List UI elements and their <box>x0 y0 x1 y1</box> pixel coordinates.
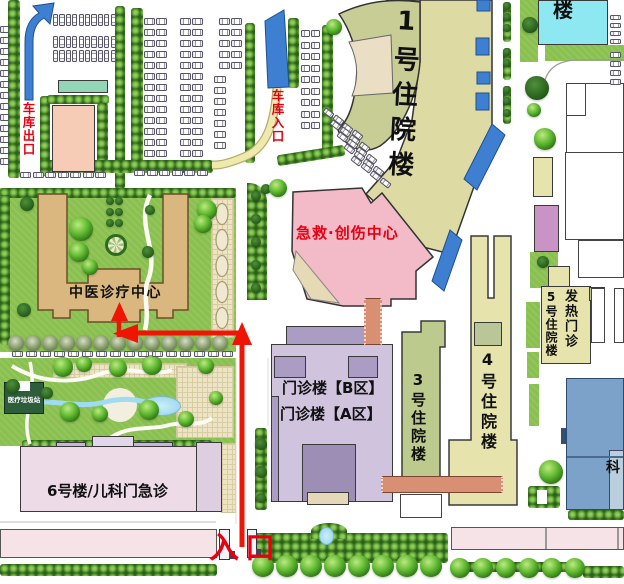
white-building <box>591 288 605 343</box>
car-icon <box>301 99 310 106</box>
car-icon <box>53 50 58 62</box>
car-icon <box>45 172 56 178</box>
car-icon <box>610 79 621 85</box>
car-icon <box>85 50 90 62</box>
car-icon <box>59 14 64 26</box>
car-icon <box>180 106 191 113</box>
boundary-building-west <box>0 529 217 558</box>
car-icon <box>83 172 94 178</box>
car-icon <box>144 40 155 47</box>
car-icon <box>58 172 69 178</box>
car-icon <box>0 48 9 55</box>
car-icon <box>610 39 621 44</box>
car-icon <box>66 50 71 62</box>
car-icon <box>214 98 226 105</box>
label-building-6: 6号楼/儿科门急诊 <box>47 484 168 499</box>
tree-icon <box>527 103 541 117</box>
car-icon <box>0 114 9 121</box>
car-icon <box>311 30 320 37</box>
car-icon <box>0 37 9 44</box>
car-icon <box>111 50 116 62</box>
car-icon <box>180 51 191 58</box>
car-icon <box>214 120 226 127</box>
car-icon <box>184 170 195 176</box>
car-icon <box>610 23 621 28</box>
car-icon <box>231 18 242 25</box>
car-icon <box>311 53 320 60</box>
tree-icon <box>255 466 267 478</box>
tree-icon <box>109 359 127 377</box>
car-icon <box>192 84 203 91</box>
car-icon <box>91 36 96 48</box>
car-icon <box>311 88 320 95</box>
car-icon <box>610 31 621 36</box>
tree-icon <box>53 357 73 377</box>
tree-icon <box>503 48 511 56</box>
hedge <box>568 510 624 520</box>
paved-path <box>211 198 234 338</box>
car-icon <box>192 117 203 124</box>
label-inpatient-3: 3号住院楼 <box>410 371 425 464</box>
car-icon <box>156 139 167 146</box>
building-inpatient-5-wing <box>548 266 570 287</box>
car-icon <box>180 95 191 102</box>
car-icon <box>156 117 167 124</box>
car-icon <box>144 29 155 36</box>
beige-annex-building <box>533 157 553 197</box>
hedge <box>277 145 346 167</box>
hedge-gap <box>537 490 547 504</box>
car-icon <box>219 40 230 47</box>
teal-service-building <box>58 80 108 93</box>
car-icon <box>156 62 167 69</box>
car-icon <box>311 65 320 72</box>
car-icon <box>144 128 155 135</box>
car-icon <box>156 84 167 91</box>
garden-plaza-circle <box>103 388 137 422</box>
car-icon <box>192 95 203 102</box>
car-icon <box>0 125 9 132</box>
grass-area <box>526 302 540 348</box>
label-garage-exit: 车库出口 <box>21 102 34 156</box>
car-icon <box>192 40 203 47</box>
car-icon <box>180 139 191 146</box>
car-icon <box>208 351 219 357</box>
hedge <box>288 18 299 88</box>
tree-icon <box>142 355 162 375</box>
car-icon <box>610 70 621 76</box>
label-tcm-center: 中医诊疗中心 <box>69 286 162 300</box>
car-icon <box>72 14 77 26</box>
bush-icon <box>127 335 143 351</box>
car-icon <box>98 14 103 26</box>
tree-icon <box>503 97 511 105</box>
car-icon <box>219 18 230 25</box>
car-icon <box>85 14 90 26</box>
car-icon <box>231 40 242 47</box>
car-icon <box>70 172 81 178</box>
tree-icon <box>539 460 563 484</box>
car-icon <box>91 14 96 26</box>
car-icon <box>192 62 203 69</box>
tree-icon <box>115 208 123 216</box>
paved-path <box>176 366 234 438</box>
car-icon <box>301 53 310 60</box>
car-icon <box>12 351 23 357</box>
car-icon <box>311 76 320 83</box>
car-icon <box>180 18 191 25</box>
tree-icon <box>251 214 261 224</box>
tree-icon <box>115 197 123 205</box>
car-icon <box>72 50 77 62</box>
tree-icon <box>106 208 114 216</box>
car-icon <box>301 42 310 49</box>
car-icon <box>610 15 621 20</box>
car-icon <box>66 36 71 48</box>
car-icon <box>124 351 135 357</box>
car-icon <box>104 50 109 62</box>
car-icon <box>192 18 203 25</box>
car-icon <box>231 51 242 58</box>
car-icon <box>79 36 84 48</box>
label-dept-partial: 科 <box>606 461 620 475</box>
building-6-pediatrics <box>20 446 212 512</box>
bush-icon <box>178 335 194 351</box>
tree-icon <box>525 76 549 100</box>
tree-icon <box>503 2 511 10</box>
car-icon <box>40 351 51 357</box>
car-icon <box>214 76 226 83</box>
car-icon <box>311 42 320 49</box>
outpatient-entrance-canopy <box>307 492 349 505</box>
label-outpatient-a: 门诊楼【A区】 <box>280 407 382 422</box>
tree-icon <box>503 109 511 117</box>
garage-ramp-icon <box>265 10 289 88</box>
label-inpatient-4: 4号住院楼 <box>479 350 495 453</box>
white-building <box>565 152 624 240</box>
bush-icon <box>110 335 126 351</box>
car-icon <box>180 117 191 124</box>
tree-icon <box>106 197 114 205</box>
label-garage-entrance: 车库入口 <box>270 89 283 143</box>
corridor-annex <box>400 494 442 518</box>
tree-icon <box>326 19 342 35</box>
car-icon <box>156 40 167 47</box>
car-icon <box>104 36 109 48</box>
car-icon <box>311 99 320 106</box>
tree-icon <box>60 402 80 422</box>
car-icon <box>0 81 9 88</box>
hedge <box>131 8 143 163</box>
car-icon <box>59 50 64 62</box>
bush-icon <box>195 335 211 351</box>
car-icon <box>301 65 310 72</box>
car-icon <box>0 147 9 154</box>
car-icon <box>180 150 191 157</box>
car-icon <box>214 142 226 149</box>
car-icon <box>152 351 163 357</box>
tree-icon <box>69 217 93 241</box>
tree-icon <box>255 438 267 450</box>
bush-icon <box>76 335 92 351</box>
tree-icon <box>503 59 511 67</box>
tree-icon <box>300 555 322 577</box>
car-icon <box>301 88 310 95</box>
hedge <box>0 195 10 345</box>
car-icon <box>180 29 191 36</box>
car-icon <box>72 36 77 48</box>
car-icon <box>180 73 191 80</box>
car-icon <box>311 111 320 118</box>
hedge <box>583 566 624 578</box>
car-icon <box>219 62 230 69</box>
tree-icon <box>76 356 92 372</box>
car-icon <box>0 26 9 33</box>
tree-icon <box>139 400 159 420</box>
tree-icon <box>251 237 261 247</box>
flowerbed-icon <box>105 234 127 256</box>
car-icon <box>147 170 158 176</box>
tree-icon <box>537 256 549 268</box>
car-icon <box>219 51 230 58</box>
car-icon <box>192 139 203 146</box>
dept-building-floor-line <box>567 456 623 458</box>
garage-exit-arrow-icon <box>25 3 54 100</box>
car-icon <box>156 18 167 25</box>
bush-icon <box>25 335 41 351</box>
car-icon <box>214 109 226 116</box>
car-icon <box>610 61 621 67</box>
label-inpatient-1: 1号住院楼 <box>385 6 420 186</box>
car-icon <box>66 14 71 26</box>
tree-icon <box>256 493 266 503</box>
car-icon <box>231 29 242 36</box>
tree-icon <box>534 128 556 150</box>
car-icon <box>197 170 208 176</box>
car-icon <box>192 106 203 113</box>
bush-icon <box>161 335 177 351</box>
label-inpatient-5: 5号住院楼 <box>545 290 557 357</box>
car-icon <box>166 351 177 357</box>
tree-icon <box>142 246 154 258</box>
car-icon <box>222 351 233 357</box>
tree-icon <box>420 555 442 577</box>
tree-icon <box>106 219 114 227</box>
tree-icon <box>542 558 562 578</box>
building-inpatient-4-annex <box>474 322 502 346</box>
bush-icon <box>93 335 109 351</box>
outpatient-tab-right <box>348 356 378 378</box>
purple-annex-building <box>534 205 559 252</box>
tree-icon <box>92 406 108 422</box>
car-icon <box>610 52 621 58</box>
tree-icon <box>565 558 585 578</box>
car-icon <box>98 36 103 48</box>
tree-icon <box>6 379 20 393</box>
car-icon <box>54 351 65 357</box>
car-icon <box>144 106 155 113</box>
pond-icon <box>319 527 334 545</box>
car-icon <box>301 30 310 37</box>
car-icon <box>85 36 90 48</box>
outpatient-tab-left <box>274 356 306 378</box>
canopy-icon <box>432 0 505 291</box>
car-icon <box>180 128 191 135</box>
grass-area <box>527 352 539 378</box>
building-inpatient-2 <box>538 0 608 45</box>
car-icon <box>0 92 9 99</box>
car-icon <box>144 150 155 157</box>
paved-path <box>221 443 236 513</box>
hedge <box>245 23 255 163</box>
car-icon <box>192 128 203 135</box>
label-inpatient-2-partial: 楼 <box>553 0 573 20</box>
car-icon <box>180 84 191 91</box>
car-icon <box>59 36 64 48</box>
car-icon <box>95 172 106 178</box>
bush-icon <box>212 335 228 351</box>
car-icon <box>156 51 167 58</box>
tree-icon <box>198 358 214 374</box>
tree-icon <box>496 558 516 578</box>
car-icon <box>144 117 155 124</box>
tree-icon <box>503 13 511 21</box>
tree-icon <box>17 303 31 317</box>
car-icon <box>192 51 203 58</box>
car-icon <box>194 351 205 357</box>
car-icon <box>144 51 155 58</box>
tree-icon <box>348 555 370 577</box>
dept-building-panel <box>609 450 624 510</box>
label-fever-clinic: 发热门诊 <box>563 289 576 349</box>
car-icon <box>156 29 167 36</box>
car-icon <box>192 150 203 157</box>
car-icon <box>156 128 167 135</box>
tree-icon <box>115 219 123 227</box>
strip-divider <box>617 528 619 549</box>
car-icon <box>301 111 310 118</box>
tree-icon <box>20 197 34 211</box>
car-icon <box>144 18 155 25</box>
label-outpatient-b: 门诊楼【B区】 <box>282 381 383 396</box>
label-emergency-trauma-center: 急救·创伤中心 <box>296 226 399 241</box>
bush-icon <box>8 335 24 351</box>
tree-icon <box>251 260 261 270</box>
car-icon <box>192 73 203 80</box>
building-1-entry-plaza <box>349 35 393 96</box>
car-icon <box>82 351 93 357</box>
car-icon <box>110 351 121 357</box>
car-icon <box>214 87 226 94</box>
tree-icon <box>519 558 539 578</box>
grass-area <box>529 384 539 426</box>
car-icon <box>53 36 58 48</box>
tree-icon <box>324 555 346 577</box>
car-icon <box>144 139 155 146</box>
car-icon <box>172 170 183 176</box>
tree-icon <box>145 205 155 215</box>
boundary-building-east <box>451 527 624 550</box>
label-main-entrance: 入口 <box>209 534 281 564</box>
car-icon <box>79 50 84 62</box>
hedge <box>0 564 217 576</box>
car-icon <box>79 14 84 26</box>
tree-icon <box>450 558 470 578</box>
car-icon <box>192 29 203 36</box>
strip-divider <box>545 528 547 549</box>
car-icon <box>0 158 9 165</box>
tree-icon <box>473 558 493 578</box>
car-icon <box>311 122 320 129</box>
tree-icon <box>503 86 511 94</box>
car-icon <box>0 70 9 77</box>
bush-icon <box>144 335 160 351</box>
car-icon <box>180 62 191 69</box>
car-icon <box>231 62 242 69</box>
tree-icon <box>82 259 98 275</box>
car-icon <box>96 351 107 357</box>
tree-icon <box>194 215 212 233</box>
car-icon <box>98 50 103 62</box>
car-icon <box>53 14 58 26</box>
corridor-emergency-outpatient <box>364 298 382 345</box>
tree-icon <box>396 555 418 577</box>
car-icon <box>0 136 9 143</box>
car-icon <box>104 14 109 26</box>
car-icon <box>214 131 226 138</box>
car-icon <box>156 73 167 80</box>
car-icon <box>219 29 230 36</box>
emergency-plaza <box>293 251 339 303</box>
car-icon <box>33 172 44 178</box>
car-icon <box>144 95 155 102</box>
building-6-tower <box>196 442 222 512</box>
car-icon <box>144 62 155 69</box>
car-icon <box>134 170 145 176</box>
parking-area-building <box>52 105 95 172</box>
tree-icon <box>209 391 223 405</box>
label-waste-station: 医疗垃圾站 <box>5 397 43 404</box>
car-icon <box>68 351 79 357</box>
car-icon <box>156 106 167 113</box>
outpatient-west-band <box>271 396 279 502</box>
building-emergency-trauma-center <box>292 188 433 306</box>
car-icon <box>156 150 167 157</box>
car-icon <box>180 40 191 47</box>
bush-icon <box>42 335 58 351</box>
car-icon <box>111 14 116 26</box>
tree-icon <box>269 179 287 197</box>
car-icon <box>144 73 155 80</box>
hedge <box>8 0 20 178</box>
corridor-inpatient-3-4 <box>381 476 503 493</box>
car-icon <box>159 170 170 176</box>
car-icon <box>301 76 310 83</box>
car-icon <box>0 103 9 110</box>
white-building <box>614 288 624 343</box>
white-building <box>578 240 624 278</box>
car-icon <box>138 351 149 357</box>
tree-icon <box>251 191 261 201</box>
tree-icon <box>178 411 194 427</box>
car-icon <box>180 351 191 357</box>
hospital-campus-map: 车库出口 车库入口 1号住院楼 楼 急救·创伤中心 中医诊疗中心 门诊楼【B区】… <box>0 0 624 584</box>
tree-icon <box>251 283 261 293</box>
outpatient-building-top <box>286 326 370 346</box>
car-icon <box>91 50 96 62</box>
car-icon <box>156 95 167 102</box>
bush-icon <box>59 335 75 351</box>
